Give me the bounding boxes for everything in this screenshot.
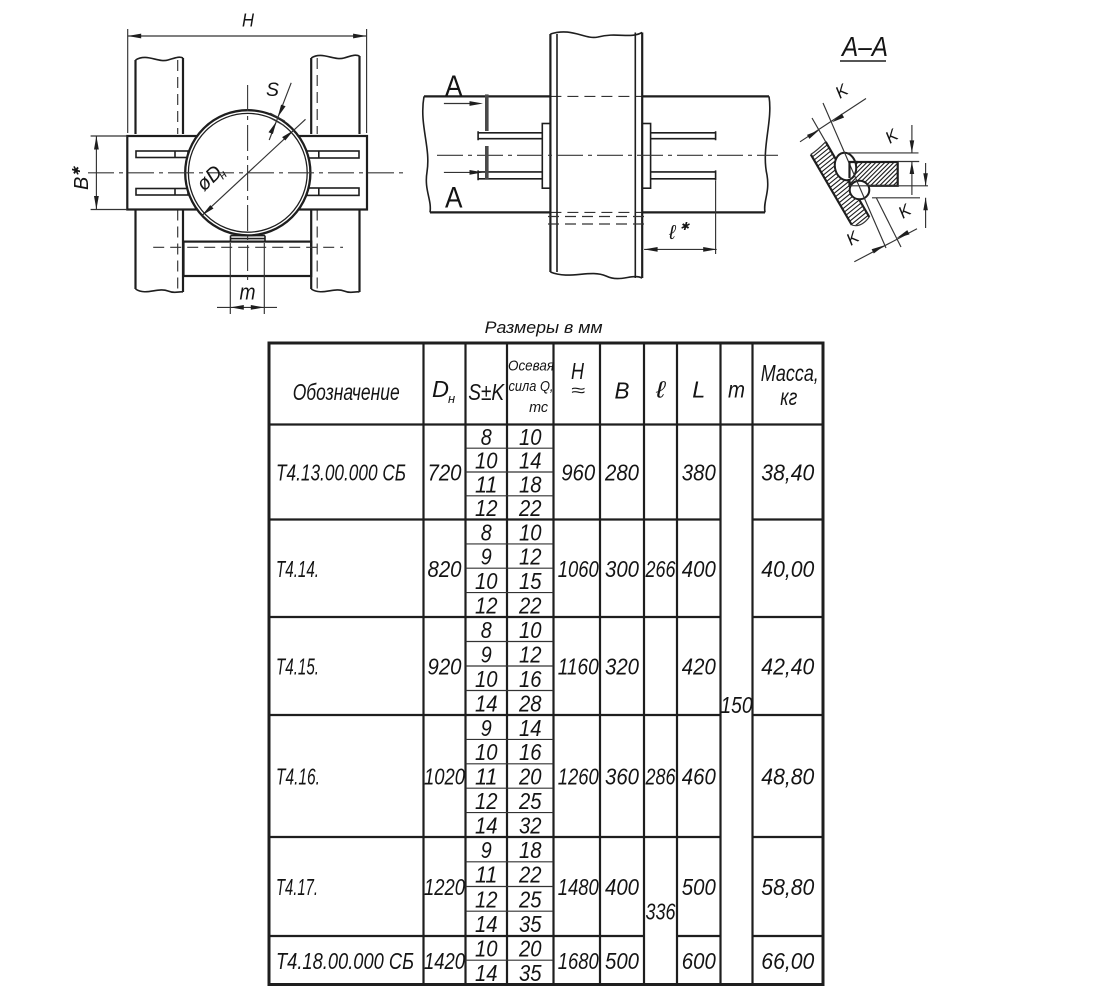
svg-text:Осевая: Осевая — [508, 358, 554, 375]
svg-text:9: 9 — [481, 641, 492, 667]
svg-text:35: 35 — [519, 960, 542, 986]
svg-text:D: D — [432, 376, 449, 402]
svg-text:10: 10 — [519, 519, 542, 545]
svg-text:S: S — [266, 80, 279, 101]
svg-text:ℓ: ℓ — [655, 377, 667, 403]
svg-text:14: 14 — [475, 812, 498, 838]
svg-text:500: 500 — [605, 948, 639, 974]
svg-text:тс: тс — [529, 399, 548, 416]
svg-text:380: 380 — [682, 460, 716, 486]
svg-text:14: 14 — [519, 448, 542, 474]
svg-text:400: 400 — [682, 556, 716, 582]
svg-text:Обозначение: Обозначение — [293, 379, 400, 405]
svg-text:16: 16 — [519, 739, 542, 765]
svg-text:16: 16 — [519, 666, 542, 692]
svg-text:336: 336 — [646, 898, 677, 924]
svg-text:320: 320 — [605, 654, 639, 680]
svg-text:1020: 1020 — [424, 764, 465, 790]
svg-text:10: 10 — [475, 936, 498, 962]
svg-text:1680: 1680 — [558, 948, 599, 974]
svg-text:22: 22 — [518, 862, 541, 888]
svg-text:920: 920 — [428, 654, 462, 680]
svg-text:кг: кг — [780, 384, 797, 410]
svg-text:10: 10 — [475, 568, 498, 594]
svg-text:1160: 1160 — [558, 654, 599, 680]
svg-text:Масса,: Масса, — [761, 360, 819, 386]
svg-text:m: m — [728, 377, 745, 403]
svg-text:400: 400 — [605, 874, 639, 900]
svg-text:S±K: S±K — [468, 379, 505, 405]
svg-text:820: 820 — [428, 556, 462, 582]
svg-text:А–А: А–А — [840, 31, 888, 62]
svg-text:22: 22 — [518, 592, 541, 618]
svg-text:Т4.17.: Т4.17. — [276, 874, 318, 900]
svg-text:H: H — [242, 11, 255, 31]
svg-text:m: m — [240, 280, 256, 305]
svg-text:58,80: 58,80 — [761, 874, 814, 900]
svg-text:14: 14 — [519, 715, 542, 741]
svg-text:9: 9 — [481, 544, 492, 570]
svg-text:150: 150 — [721, 692, 753, 718]
svg-text:11: 11 — [475, 472, 498, 498]
svg-text:35: 35 — [519, 911, 542, 937]
svg-text:10: 10 — [519, 617, 542, 643]
svg-text:А: А — [445, 182, 463, 215]
svg-text:12: 12 — [475, 495, 498, 521]
svg-text:12: 12 — [475, 887, 498, 913]
svg-text:20: 20 — [518, 764, 541, 790]
svg-text:22: 22 — [518, 495, 541, 521]
svg-text:28: 28 — [518, 690, 541, 716]
svg-text:286: 286 — [645, 764, 676, 790]
svg-text:10: 10 — [475, 666, 498, 692]
svg-text:25: 25 — [518, 788, 542, 814]
svg-text:1480: 1480 — [558, 874, 599, 900]
svg-text:✱: ✱ — [71, 166, 83, 176]
svg-text:12: 12 — [519, 641, 542, 667]
svg-text:8: 8 — [481, 617, 492, 643]
svg-text:А: А — [445, 70, 463, 103]
svg-text:18: 18 — [519, 472, 542, 498]
svg-text:360: 360 — [605, 764, 639, 790]
svg-text:48,80: 48,80 — [761, 764, 814, 790]
svg-text:Т4.18.00.000 СБ: Т4.18.00.000 СБ — [276, 948, 414, 974]
svg-text:38,40: 38,40 — [761, 460, 814, 486]
svg-text:600: 600 — [682, 948, 716, 974]
svg-text:1060: 1060 — [558, 556, 599, 582]
svg-text:Т4.16.: Т4.16. — [276, 764, 320, 790]
svg-text:✱: ✱ — [680, 221, 690, 233]
svg-text:Т4.14.: Т4.14. — [276, 556, 319, 582]
svg-text:8: 8 — [481, 519, 492, 545]
svg-text:40,00: 40,00 — [761, 556, 814, 582]
svg-text:720: 720 — [428, 460, 462, 486]
svg-text:14: 14 — [475, 960, 498, 986]
svg-text:14: 14 — [475, 690, 498, 716]
svg-text:18: 18 — [519, 837, 542, 863]
svg-text:10: 10 — [519, 424, 542, 450]
svg-text:8: 8 — [481, 424, 492, 450]
svg-text:10: 10 — [475, 739, 498, 765]
svg-text:11: 11 — [475, 862, 498, 888]
svg-text:B: B — [71, 177, 93, 190]
svg-text:960: 960 — [561, 460, 595, 486]
svg-text:9: 9 — [481, 715, 492, 741]
svg-text:1260: 1260 — [558, 764, 599, 790]
svg-text:32: 32 — [519, 812, 542, 838]
svg-text:300: 300 — [605, 556, 639, 582]
svg-text:460: 460 — [682, 764, 716, 790]
svg-text:12: 12 — [519, 544, 542, 570]
svg-text:42,40: 42,40 — [761, 654, 814, 680]
svg-text:14: 14 — [475, 911, 498, 937]
svg-text:12: 12 — [475, 592, 498, 618]
svg-text:66,00: 66,00 — [761, 948, 814, 974]
svg-text:Т4.13.00.000 СБ: Т4.13.00.000 СБ — [276, 460, 406, 486]
svg-text:н: н — [448, 391, 455, 406]
svg-text:1420: 1420 — [424, 948, 465, 974]
svg-text:≈: ≈ — [571, 381, 586, 400]
svg-text:сила Q,: сила Q, — [509, 378, 554, 395]
svg-text:266: 266 — [645, 556, 676, 582]
svg-text:Т4.15.: Т4.15. — [276, 654, 319, 680]
svg-text:25: 25 — [518, 887, 542, 913]
svg-text:9: 9 — [481, 837, 492, 863]
svg-text:20: 20 — [518, 936, 541, 962]
svg-text:11: 11 — [475, 764, 498, 790]
svg-text:10: 10 — [475, 448, 498, 474]
svg-text:1220: 1220 — [424, 874, 465, 900]
svg-text:L: L — [692, 377, 705, 403]
svg-text:420: 420 — [682, 654, 716, 680]
svg-text:Размеры в мм: Размеры в мм — [485, 319, 603, 337]
svg-text:B: B — [615, 378, 630, 404]
svg-text:15: 15 — [519, 568, 542, 594]
svg-text:280: 280 — [604, 460, 639, 486]
svg-text:500: 500 — [682, 874, 716, 900]
svg-text:12: 12 — [475, 788, 498, 814]
